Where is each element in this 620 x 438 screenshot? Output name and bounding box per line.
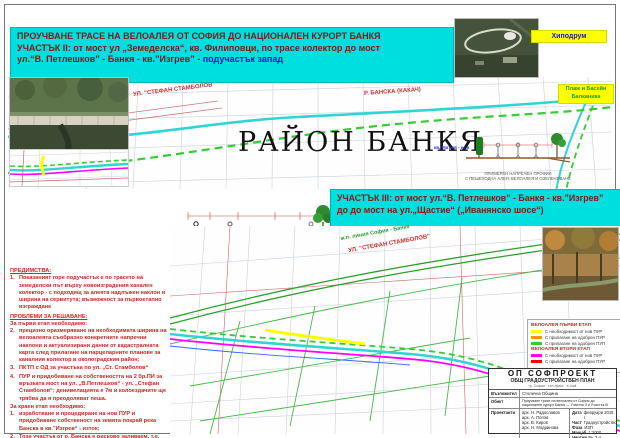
legend-item: С необходимост от нов ПУР (531, 353, 620, 358)
advantages-heading: ПРЕДИМСТВА: (10, 268, 168, 275)
project-title-line1: ПРОУЧВАНЕ ТРАСЕ НА ВЕЛОАЛЕЯ ОТ СОФИЯ ДО … (17, 31, 447, 43)
section3-line1: УЧАСТЪК III: от мост ул.“В. Петлешков” -… (337, 193, 615, 205)
hippodrome-label: Хиподрум (531, 30, 607, 43)
problems-heading: ПРОБЛЕМИ ЗА РЕШАВАНЕ: (10, 314, 168, 321)
legend-item: С прилагане на одобрен ПУП (531, 341, 620, 346)
section3-title-bar: УЧАСТЪК III: от мост ул.“В. Петлешков” -… (330, 189, 620, 229)
titleblock-row: Проектанти арх. Н. Радославов арх. А. По… (489, 409, 616, 438)
pedestrian-figures (496, 143, 538, 158)
cross-section-profile: ПРИМЕРЕН НАПРЕЧЕН ПРОФИЛ С ПЕШЕХОДНА АЛЕ… (462, 131, 574, 181)
tree-icon-right (551, 133, 566, 158)
beach-pool-label: Плаж и Басейн Балканика (558, 84, 614, 104)
swatch-green (531, 342, 542, 345)
company-name: ОП СОФПРОЕКТ (489, 369, 616, 378)
photo-river-autumn (543, 228, 618, 300)
problem-item: 1. изработване и процедиране на нов ПУР … (10, 411, 168, 433)
title-block: ОП СОФПРОЕКТ ОБЩ ГРАДОУСТРОЙСТВЕН ПЛАН г… (488, 368, 617, 434)
problem-item: 2. Този участък от р. Банска е рисково з… (10, 434, 168, 438)
project-title-line2: УЧАСТЪК II: от мост ул „Земеделска“, кв.… (17, 43, 447, 55)
legend-stage2-title: ВЕЛОАЛЕЯ ВТОРИ ЕТАП (531, 347, 620, 352)
swatch-yellow (531, 330, 542, 333)
district-title: РАЙОН БАНКЯ (238, 127, 483, 158)
dimension-lines (188, 212, 323, 220)
cross-section-caption: ПРИМЕРЕН НАПРЕЧЕН ПРОФИЛ С ПЕШЕХОДНА АЛЕ… (462, 171, 574, 182)
titleblock-row: Обект Проучване трасе на велоалея от Соф… (489, 398, 616, 409)
project-title-line3: ул.“В. Петлешков” - Банкя - кв.”Изгрев” … (17, 54, 447, 66)
mini-map-detail (10, 150, 128, 186)
stage2-heading: За краен етап необходимо: (10, 404, 168, 411)
photo-hippodrome-aerial (455, 19, 538, 77)
swatch-red (531, 360, 542, 363)
titleblock-row: Възложител Столична Община (489, 390, 616, 398)
legend-stage1-title: ВЕЛОАЛЕЯ ПЪРВИ ЕТАП (531, 323, 620, 328)
legend: ВЕЛОАЛЕЯ ПЪРВИ ЕТАП С необходимост от но… (528, 320, 620, 372)
district-kv-label: кв. Изгрев - нов (434, 145, 469, 150)
titleblock-meta: Датафевруари 2015 г. ЧастГрадоустройство… (570, 409, 616, 438)
advantage-item: 1. Показаният горе подучастък е по трасе… (10, 275, 168, 311)
drawing-sheet: УЛ. "СТЕФАН СТАМБОЛОВ" Р. БАНСКА (КАКАЧ)… (0, 0, 620, 438)
legend-item: С прилагане на одобрен ПУР (531, 359, 620, 364)
problem-item: 2. прецизно оразмеряване на необходимата… (10, 328, 168, 364)
swatch-magenta (531, 354, 542, 357)
tree-column-icon (476, 137, 483, 158)
notes-block: ПРЕДИМСТВА: 1. Показаният горе подучастъ… (10, 268, 168, 438)
subsection-highlight: подучастък запад (203, 54, 283, 64)
swatch-orange (531, 336, 542, 339)
legend-item: С необходимост от нов ПУР (531, 329, 620, 334)
photo-bridge-site (10, 78, 128, 150)
project-title-bar: ПРОУЧВАНЕ ТРАСЕ НА ВЕЛОАЛЕЯ ОТ СОФИЯ ДО … (10, 27, 454, 83)
legend-item: С прилагане на одобрен ПУР (531, 335, 620, 340)
problem-item: 3. ПКТП с ОД за участъка по ул. „Ст. Ста… (10, 365, 168, 372)
problem-item: 4. ПУР и придобиване на собствеността на… (10, 374, 168, 403)
section3-line2: до до мост на ул.„Щастие“ („Иванянско шо… (337, 205, 615, 217)
